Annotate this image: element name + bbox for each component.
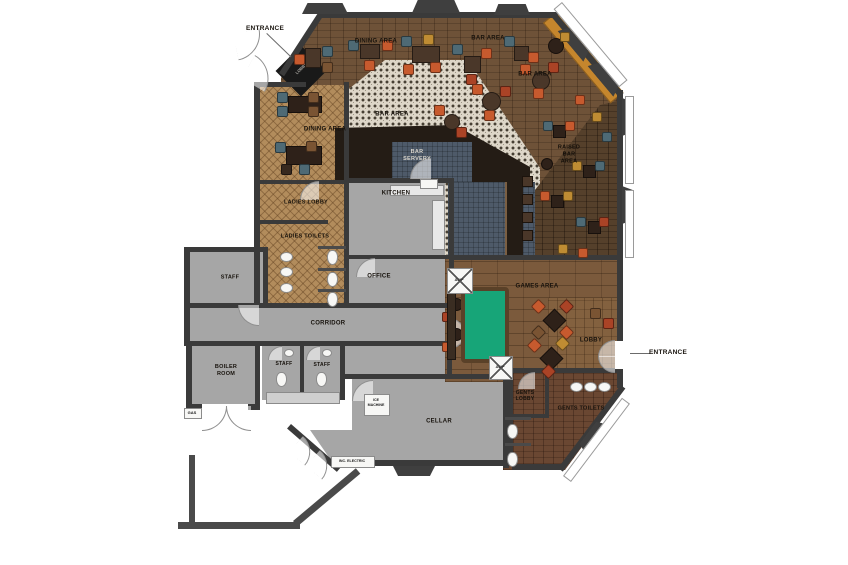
- label-staff-room: STAFF: [221, 275, 240, 282]
- label-dining-area-left: DINING AREA: [304, 126, 346, 134]
- door-opening: [615, 341, 625, 369]
- label-raised-bar-area: RAISED BAR AREA: [558, 145, 580, 166]
- table: [464, 56, 481, 73]
- sink: [280, 252, 293, 262]
- label-staff-wc-2: STAFF: [314, 362, 331, 368]
- wall: [254, 82, 260, 308]
- chair: [592, 112, 602, 122]
- chair: [434, 105, 445, 116]
- label-office: OFFICE: [367, 273, 391, 281]
- chair: [472, 84, 483, 95]
- chair: [277, 106, 288, 117]
- entrance-right-leader: [630, 353, 650, 354]
- bay-window-pier: [393, 466, 435, 476]
- wall: [255, 345, 260, 408]
- bay-window-pier: [302, 3, 348, 14]
- awp-machine-label: AWP: [447, 277, 471, 282]
- bar-stool: [522, 230, 533, 241]
- label-gents-lobby: GENTS LOBBY: [516, 390, 535, 403]
- urinal: [570, 382, 583, 392]
- wall: [186, 345, 192, 408]
- chair: [595, 161, 605, 171]
- label-gents-toilets: GENTS TOILETS: [558, 406, 605, 413]
- chair: [500, 86, 511, 97]
- window: [625, 190, 634, 258]
- chair: [602, 132, 612, 142]
- chair: [401, 36, 412, 47]
- table: [360, 44, 380, 59]
- boundary-wall: [178, 522, 300, 529]
- label-corridor: CORRIDOR: [311, 320, 346, 328]
- round-table: [541, 158, 553, 170]
- label-dining-area-top: DINING AREA: [355, 38, 397, 46]
- label-bar-servery: BAR SERVERY: [403, 149, 431, 163]
- bar-counter-right: [505, 182, 523, 258]
- entrance-top-leader: [266, 33, 291, 57]
- wall: [348, 255, 452, 259]
- toilet: [276, 372, 287, 387]
- chair: [533, 88, 544, 99]
- label-boiler-room: BOILER ROOM: [215, 364, 237, 378]
- wall: [345, 374, 512, 379]
- chair: [364, 60, 375, 71]
- basin: [322, 349, 332, 357]
- floor-plan-canvas: LOBBY AWP AWP ICE MACHINE GAS INC. ELECT…: [0, 0, 848, 565]
- worktop: [266, 392, 340, 404]
- chair: [576, 217, 586, 227]
- incoming-electric-label: INC. ELECTRIC: [331, 459, 373, 463]
- label-games-area: GAMES AREA: [516, 283, 559, 291]
- toilet: [327, 292, 338, 307]
- door-swing: [226, 406, 251, 431]
- toilet: [316, 372, 327, 387]
- stall-divider: [318, 246, 346, 249]
- table: [412, 46, 440, 63]
- chair: [322, 62, 333, 73]
- chair: [322, 46, 333, 57]
- chair: [528, 52, 539, 63]
- urinal: [598, 382, 611, 392]
- window: [625, 96, 634, 184]
- chair: [456, 127, 467, 138]
- chair: [308, 92, 319, 103]
- round-table: [482, 92, 501, 111]
- wall: [256, 220, 328, 224]
- label-bar-area-right: BAR AREA: [518, 71, 551, 79]
- chair: [308, 106, 319, 117]
- label-lobby-right: LOBBY: [580, 337, 602, 345]
- boundary-wall: [189, 455, 195, 528]
- table: [514, 46, 529, 61]
- toilet: [327, 250, 338, 265]
- chair: [540, 191, 550, 201]
- label-entrance-right: ENTRANCE: [649, 349, 687, 357]
- chair: [599, 217, 609, 227]
- chair: [452, 44, 463, 55]
- bar-stool: [522, 212, 533, 223]
- label-bar-area-mid: BAR AREA: [375, 111, 408, 119]
- awp-machine-label: AWP: [489, 364, 511, 369]
- wall: [184, 303, 190, 345]
- wall: [452, 255, 622, 260]
- door-swing: [202, 406, 227, 431]
- wall: [340, 345, 345, 400]
- chair: [306, 141, 317, 152]
- chair: [563, 191, 573, 201]
- stall-divider: [318, 289, 346, 292]
- gas-meter-label: GAS: [184, 410, 200, 415]
- chair: [590, 308, 601, 319]
- stall-divider: [505, 417, 531, 420]
- sink: [280, 267, 293, 277]
- label-bar-area-top: BAR AREA: [471, 35, 504, 43]
- chair: [403, 64, 414, 75]
- chair: [277, 92, 288, 103]
- door-swing: [233, 28, 265, 60]
- boundary-wall: [293, 468, 360, 526]
- toilet: [507, 452, 518, 467]
- ice-machine-label: ICE MACHINE: [363, 398, 389, 407]
- bar-stool: [522, 176, 533, 187]
- chair: [560, 32, 570, 42]
- bar-stool: [522, 194, 533, 205]
- wall: [256, 180, 348, 184]
- chair: [603, 318, 614, 329]
- label-ladies-lobby: LADIES LOBBY: [284, 200, 328, 207]
- chair: [575, 95, 585, 105]
- chair: [423, 34, 434, 45]
- bay-window-pier: [412, 0, 460, 13]
- chair: [565, 121, 575, 131]
- stall-divider: [505, 443, 531, 446]
- bay-window-pier: [494, 4, 530, 15]
- sink: [280, 283, 293, 293]
- chair: [484, 110, 495, 121]
- basin: [284, 349, 294, 357]
- stall-divider: [318, 268, 346, 271]
- bench-seat: [447, 288, 456, 360]
- chair: [281, 164, 292, 175]
- kitchen-equipment: [432, 200, 445, 250]
- label-ladies-toilets: LADIES TOILETS: [281, 234, 329, 241]
- chair: [481, 48, 492, 59]
- chair: [543, 121, 553, 131]
- toilet: [507, 424, 518, 439]
- urinal: [584, 382, 597, 392]
- wall: [344, 82, 349, 307]
- label-staff-wc-1: STAFF: [276, 361, 293, 367]
- chair: [430, 62, 441, 73]
- chair: [294, 54, 305, 65]
- chair: [299, 164, 310, 175]
- wall: [263, 252, 268, 307]
- label-cellar: CELLAR: [426, 418, 452, 426]
- chair: [275, 142, 286, 153]
- chair: [578, 248, 588, 258]
- wall: [512, 464, 564, 470]
- kitchen-label-box: [420, 179, 438, 189]
- label-kitchen: KITCHEN: [382, 190, 410, 198]
- wall: [184, 247, 190, 310]
- table: [305, 48, 321, 68]
- toilet: [327, 272, 338, 287]
- label-entrance-top: ENTRANCE: [246, 25, 284, 33]
- pool-table: [461, 287, 509, 363]
- wall: [184, 303, 452, 308]
- chair: [558, 244, 568, 254]
